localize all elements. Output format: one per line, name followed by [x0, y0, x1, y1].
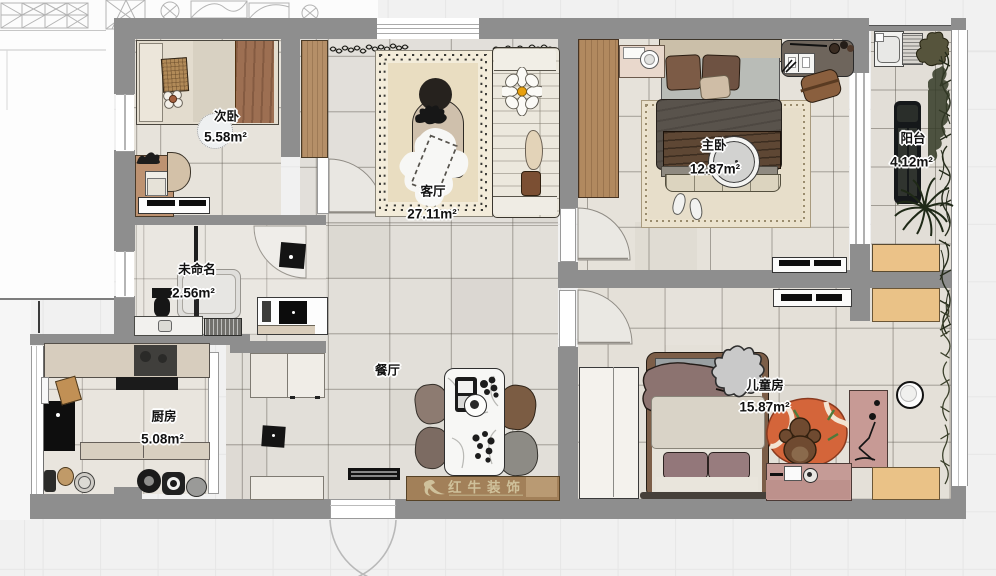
svg-text:红牛装饰: 红牛装饰: [448, 479, 526, 495]
